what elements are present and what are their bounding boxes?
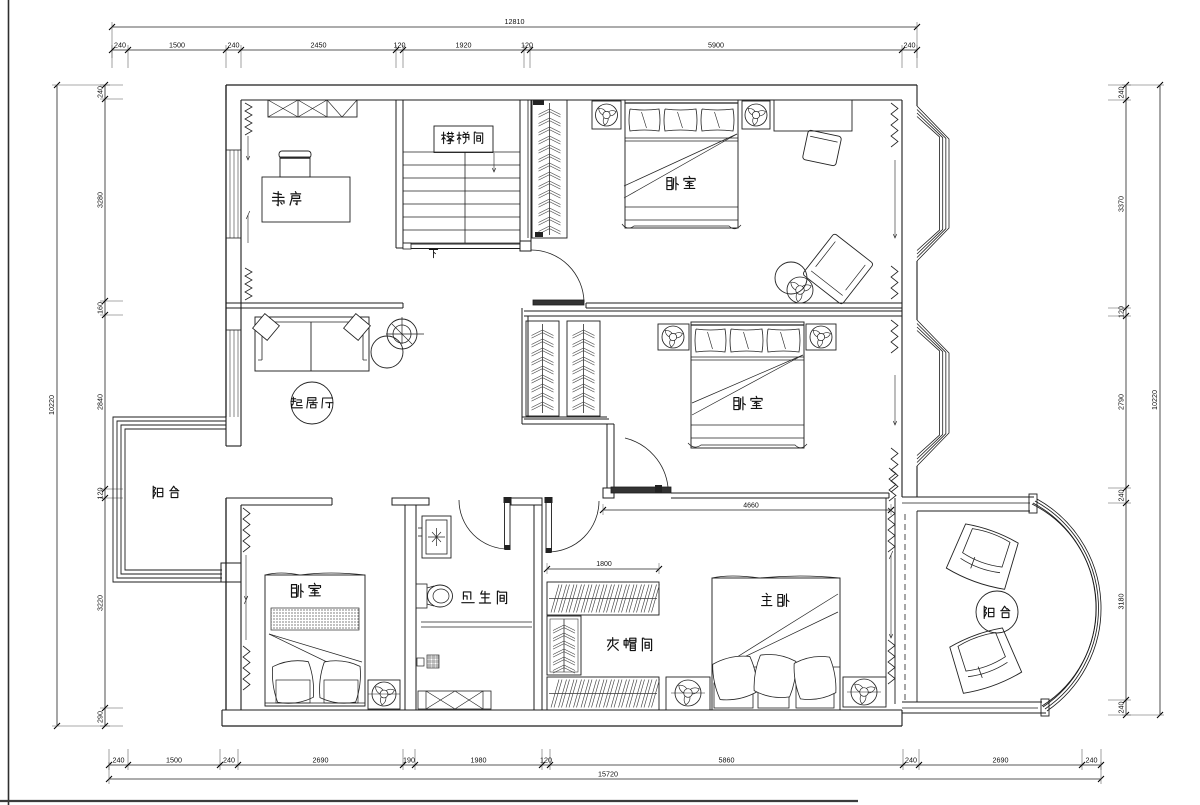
svg-text:1980: 1980 — [471, 756, 487, 765]
svg-text:160: 160 — [96, 302, 105, 314]
svg-text:240: 240 — [1117, 87, 1126, 99]
svg-text:120: 120 — [96, 488, 105, 500]
svg-text:240: 240 — [228, 41, 240, 50]
svg-text:240: 240 — [905, 756, 917, 765]
svg-text:240: 240 — [1117, 702, 1126, 714]
svg-text:240: 240 — [114, 41, 126, 50]
svg-text:4660: 4660 — [743, 503, 759, 510]
svg-text:120: 120 — [521, 41, 533, 50]
svg-text:2840: 2840 — [96, 394, 105, 410]
svg-text:2790: 2790 — [1117, 394, 1126, 410]
svg-text:290: 290 — [96, 711, 105, 723]
svg-text:240: 240 — [223, 756, 235, 765]
svg-text:120: 120 — [540, 756, 552, 765]
svg-text:240: 240 — [96, 86, 105, 98]
svg-text:240: 240 — [1086, 756, 1098, 765]
svg-text:3370: 3370 — [1117, 196, 1126, 212]
svg-text:3220: 3220 — [96, 595, 105, 611]
svg-text:240: 240 — [904, 41, 916, 50]
svg-text:2450: 2450 — [311, 41, 327, 50]
svg-text:15720: 15720 — [598, 770, 618, 779]
svg-text:3280: 3280 — [96, 192, 105, 208]
svg-text:2690: 2690 — [313, 756, 329, 765]
svg-text:5900: 5900 — [708, 41, 724, 50]
svg-text:120: 120 — [1117, 306, 1126, 318]
svg-text:1500: 1500 — [169, 41, 185, 50]
svg-text:120: 120 — [394, 41, 406, 50]
svg-text:240: 240 — [1117, 490, 1126, 502]
svg-text:240: 240 — [113, 756, 125, 765]
svg-text:2690: 2690 — [993, 756, 1009, 765]
svg-text:1500: 1500 — [166, 756, 182, 765]
svg-text:5860: 5860 — [719, 756, 735, 765]
svg-text:10220: 10220 — [1150, 390, 1159, 410]
svg-text:10220: 10220 — [47, 395, 56, 415]
svg-text:190: 190 — [403, 756, 415, 765]
svg-text:1800: 1800 — [596, 561, 612, 568]
svg-text:12810: 12810 — [505, 17, 525, 26]
svg-text:3180: 3180 — [1117, 594, 1126, 610]
svg-text:1920: 1920 — [456, 41, 472, 50]
